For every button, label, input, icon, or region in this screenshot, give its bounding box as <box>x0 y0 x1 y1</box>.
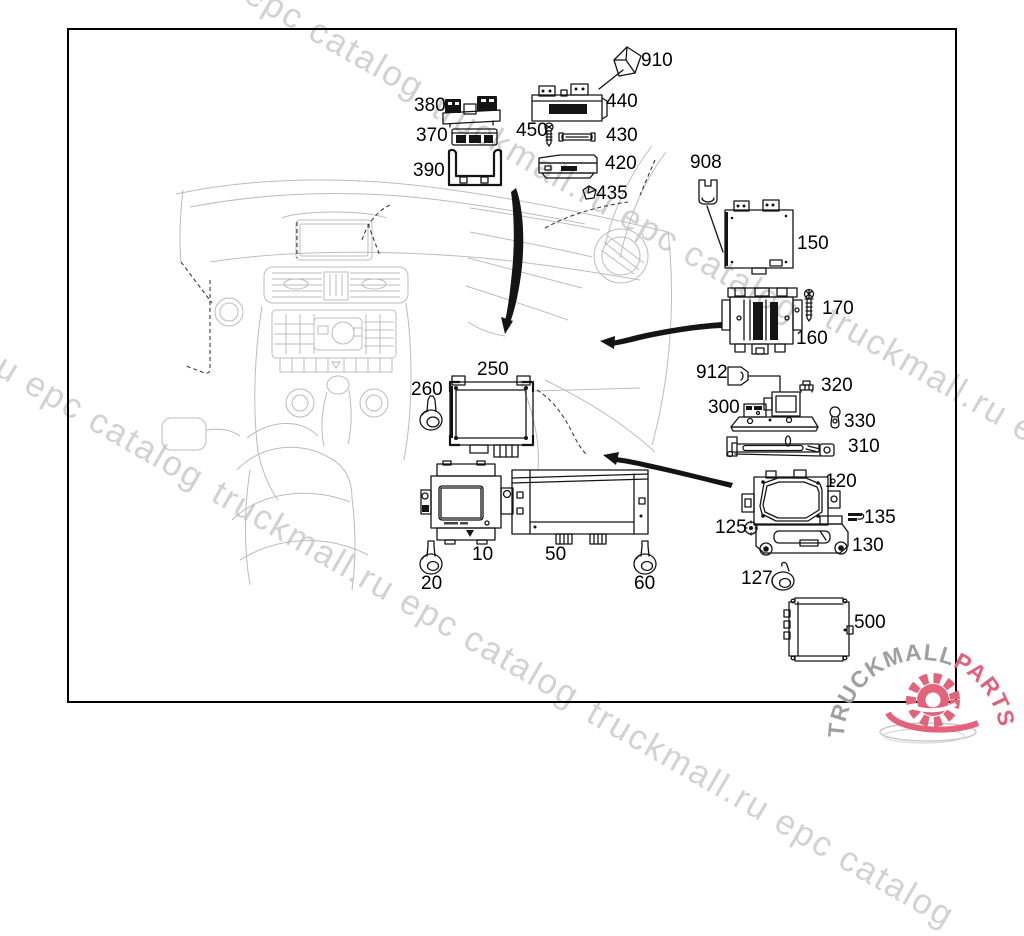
part-910-drawing <box>614 47 641 76</box>
part-300-drawing <box>731 392 818 431</box>
part-label-908: 908 <box>690 153 722 173</box>
part-label-50: 50 <box>545 545 566 565</box>
part-125-drawing <box>745 521 757 535</box>
part-130-drawing <box>756 516 848 555</box>
part-135-drawing <box>848 513 864 521</box>
part-label-450: 450 <box>516 121 548 141</box>
part-label-910: 910 <box>641 51 673 71</box>
logo-text-pink: PARTS <box>950 647 1020 729</box>
part-label-20: 20 <box>421 574 442 594</box>
part-label-135: 135 <box>864 508 896 528</box>
part-label-127: 127 <box>741 569 773 589</box>
part-label-420: 420 <box>605 154 637 174</box>
part-label-150: 150 <box>797 234 829 254</box>
leader-912 <box>748 376 780 391</box>
part-330-drawing <box>830 407 840 428</box>
truckmall-parts-logo: TRUCKMALLPARTS <box>828 628 1024 750</box>
part-label-160: 160 <box>796 329 828 349</box>
part-label-60: 60 <box>634 574 655 594</box>
part-label-380: 380 <box>414 96 446 116</box>
arrow-down <box>501 188 523 334</box>
part-50-drawing <box>512 470 648 544</box>
part-label-260: 260 <box>411 380 443 400</box>
part-label-912: 912 <box>696 363 728 383</box>
part-390-drawing <box>449 150 501 185</box>
part-430-drawing <box>559 133 595 141</box>
part-127-drawing <box>772 562 794 590</box>
part-label-370: 370 <box>416 126 448 146</box>
part-60-drawing <box>634 541 656 574</box>
part-260-drawing <box>420 396 442 430</box>
part-440-drawing <box>532 84 607 121</box>
part-380-drawing <box>443 96 500 127</box>
part-label-130: 130 <box>852 536 884 556</box>
part-label-120: 120 <box>825 472 857 492</box>
arrow-left-upper <box>600 322 722 349</box>
part-310-drawing <box>727 436 834 457</box>
part-10-drawing <box>421 461 513 544</box>
logo-gear-icon <box>910 678 956 722</box>
part-label-430: 430 <box>606 126 638 146</box>
part-170-drawing <box>805 290 814 322</box>
part-420-drawing <box>539 155 597 178</box>
leader-908 <box>707 206 723 252</box>
part-label-170: 170 <box>822 299 854 319</box>
part-150-drawing <box>725 200 793 274</box>
part-label-390: 390 <box>413 161 445 181</box>
part-908-drawing <box>699 180 717 204</box>
part-912-drawing <box>728 367 748 385</box>
part-250-drawing <box>450 376 533 457</box>
part-370-drawing <box>452 129 497 145</box>
part-label-310: 310 <box>848 437 880 457</box>
part-label-435: 435 <box>596 184 628 204</box>
part-435-drawing <box>583 186 596 199</box>
part-label-330: 330 <box>844 412 876 432</box>
part-320-drawing <box>800 381 813 392</box>
part-20-drawing <box>420 541 442 574</box>
part-label-125: 125 <box>715 518 747 538</box>
part-label-250: 250 <box>477 360 509 380</box>
part-label-300: 300 <box>708 398 740 418</box>
part-label-10: 10 <box>472 545 493 565</box>
part-label-320: 320 <box>821 376 853 396</box>
part-label-440: 440 <box>606 92 638 112</box>
leader-910 <box>599 70 623 89</box>
part-160-drawing <box>722 288 802 354</box>
